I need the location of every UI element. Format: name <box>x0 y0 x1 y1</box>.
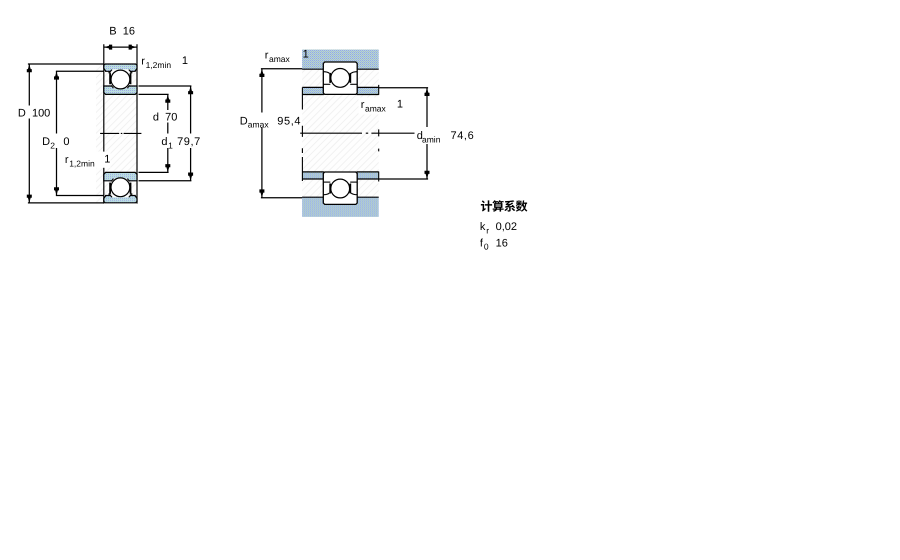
svg-text:D: D <box>42 136 50 148</box>
svg-text:d: d <box>161 136 167 148</box>
svg-text:r: r <box>486 225 489 235</box>
svg-text:1: 1 <box>182 55 188 67</box>
svg-text:0: 0 <box>63 136 69 148</box>
svg-text:amin: amin <box>422 135 441 145</box>
svg-text:95,4: 95,4 <box>277 115 301 127</box>
svg-text:0,02: 0,02 <box>496 221 517 233</box>
svg-text:1: 1 <box>168 141 173 151</box>
svg-text:2: 2 <box>50 141 55 151</box>
svg-text:k: k <box>480 221 486 233</box>
svg-text:amax: amax <box>365 104 387 114</box>
svg-text:1,2min: 1,2min <box>146 60 172 70</box>
svg-text:1: 1 <box>303 49 309 61</box>
svg-text:1: 1 <box>104 154 110 166</box>
svg-text:d 70: d 70 <box>153 112 177 124</box>
svg-text:79,7: 79,7 <box>177 136 201 148</box>
svg-text:1,2min: 1,2min <box>69 159 95 169</box>
svg-text:B 16: B 16 <box>109 25 135 37</box>
svg-text:74,6: 74,6 <box>451 130 475 142</box>
svg-text:0: 0 <box>484 242 489 252</box>
svg-text:1: 1 <box>397 99 403 111</box>
svg-text:16: 16 <box>496 237 508 249</box>
svg-text:D: D <box>240 115 248 127</box>
svg-text:amax: amax <box>248 120 270 130</box>
svg-text:amax: amax <box>269 54 291 64</box>
svg-text:D 100: D 100 <box>18 107 50 119</box>
